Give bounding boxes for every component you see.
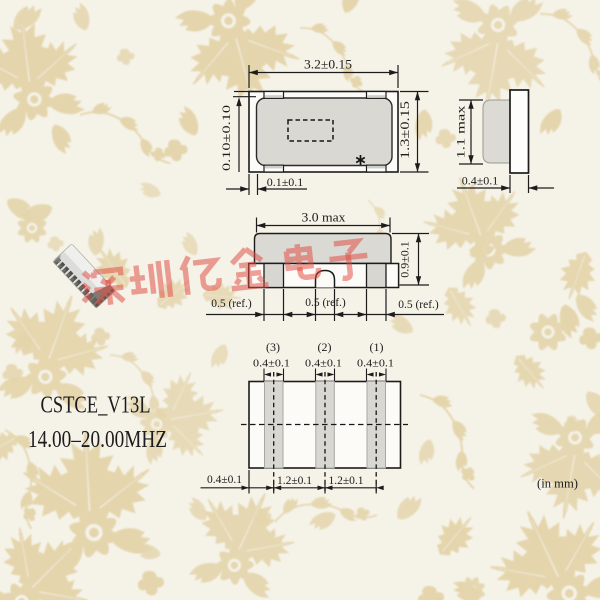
svg-text:0.5 (ref.): 0.5 (ref.) bbox=[211, 298, 252, 310]
svg-text:(in mm): (in mm) bbox=[537, 477, 578, 491]
svg-text:3.0 max: 3.0 max bbox=[302, 211, 347, 225]
svg-text:0.10±0.10: 0.10±0.10 bbox=[221, 105, 233, 171]
svg-text:1.2±0.1: 1.2±0.1 bbox=[328, 475, 363, 487]
svg-text:1.2±0.1: 1.2±0.1 bbox=[277, 475, 312, 487]
svg-text:CSTCE_V13L: CSTCE_V13L bbox=[41, 393, 151, 419]
svg-text:0.4±0.1: 0.4±0.1 bbox=[357, 358, 394, 370]
svg-text:0.9±0.1: 0.9±0.1 bbox=[398, 241, 412, 278]
svg-text:(3): (3) bbox=[266, 340, 280, 354]
svg-text:0.4±0.1: 0.4±0.1 bbox=[305, 358, 342, 370]
svg-text:3.2±0.15: 3.2±0.15 bbox=[304, 58, 352, 72]
svg-text:0.1±0.1: 0.1±0.1 bbox=[267, 175, 304, 189]
svg-text:0.4±0.1: 0.4±0.1 bbox=[207, 474, 242, 486]
svg-text:0.4±0.1: 0.4±0.1 bbox=[253, 358, 290, 370]
svg-text:(1): (1) bbox=[370, 340, 384, 354]
svg-text:0.4±0.1: 0.4±0.1 bbox=[462, 174, 499, 188]
svg-text:1.3±0.15: 1.3±0.15 bbox=[398, 101, 412, 159]
svg-text:1.1 max: 1.1 max bbox=[454, 106, 468, 159]
svg-text:0.5 (ref.): 0.5 (ref.) bbox=[305, 297, 346, 309]
svg-text:14.00–20.00MHZ: 14.00–20.00MHZ bbox=[28, 427, 167, 453]
svg-text:(2): (2) bbox=[318, 340, 332, 354]
svg-text:0.5 (ref.): 0.5 (ref.) bbox=[398, 299, 439, 311]
